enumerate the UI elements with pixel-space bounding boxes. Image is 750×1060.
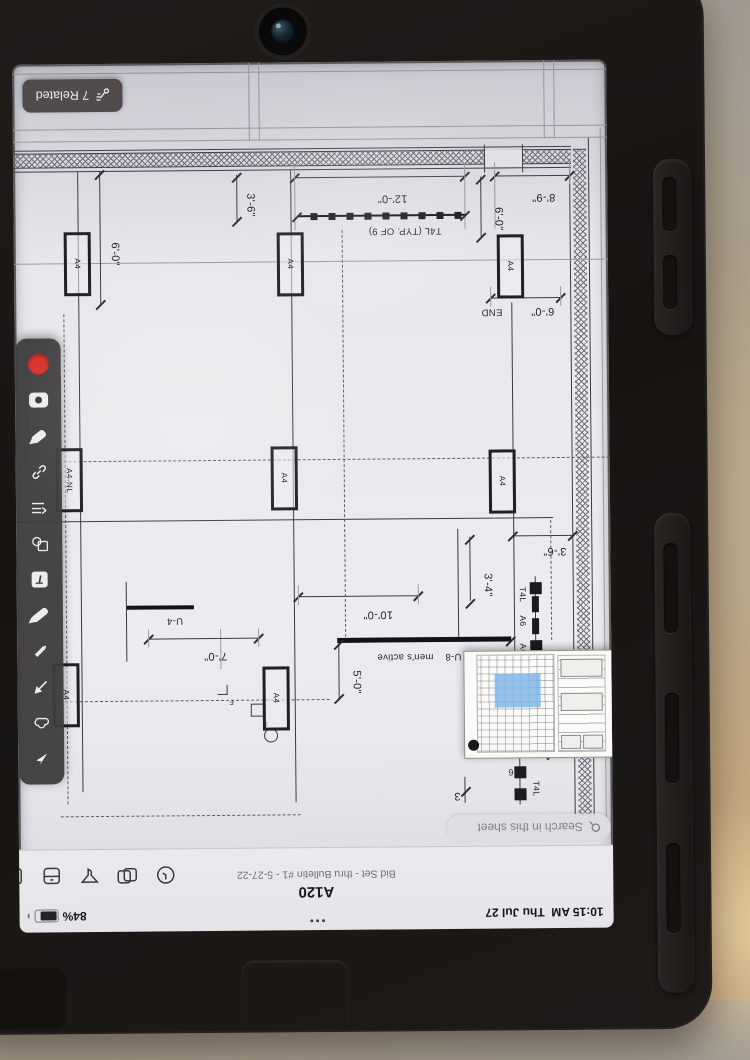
record-issue-button[interactable] xyxy=(24,350,52,378)
sheet-minimap[interactable] xyxy=(463,650,613,759)
text-tool[interactable]: T xyxy=(26,565,54,593)
battery-status: 84% xyxy=(28,909,87,924)
label-t4l-lower: T4L xyxy=(532,781,541,797)
ipad-rugged-case: 12'-0" 8'-9" 3'-6" 6'-0" 6'-0" 6'-0" END… xyxy=(0,0,713,1035)
multitask-dots[interactable]: ••• xyxy=(20,912,614,929)
fixture-a4: A4 xyxy=(262,666,290,730)
case-button-bumper xyxy=(653,159,693,335)
ipad-screen: 12'-0" 8'-9" 3'-6" 6'-0" 6'-0" 6'-0" END… xyxy=(12,60,614,933)
camera-cutout xyxy=(254,2,313,61)
dim-6-0-b: 6'-0" xyxy=(492,207,503,231)
minimap-legend-strip xyxy=(557,655,606,752)
minimap-viewport[interactable] xyxy=(494,673,540,707)
highlighter-tool[interactable] xyxy=(26,601,54,629)
filter-funnel-icon[interactable] xyxy=(77,863,102,888)
label-t4l-typ: T4L (TYP. OF 9) xyxy=(368,226,441,236)
label-f-2: F xyxy=(229,698,234,705)
volume-button xyxy=(662,177,676,231)
marker-tool[interactable] xyxy=(25,422,53,450)
fixture-a4: A4 xyxy=(489,449,517,513)
hyperlink-tool[interactable] xyxy=(25,458,53,486)
camera-lens xyxy=(271,19,295,43)
dim-3-6-b: 3'-6" xyxy=(543,545,567,556)
markup-toolbar: T xyxy=(16,338,65,784)
dim-3-4: 3'-4" xyxy=(482,573,493,597)
label-t4l-chain-2: T4L xyxy=(518,587,527,603)
pen-tool[interactable] xyxy=(27,637,55,665)
dim-3: 3 xyxy=(454,790,461,801)
dim-7-0: 7'-0" xyxy=(204,650,228,661)
callout-list-tool[interactable] xyxy=(25,494,53,522)
fixture-a4: A4 xyxy=(271,446,299,510)
battery-icon xyxy=(35,910,59,923)
app-header: 10:15 AM Thu Jul 27 ••• 84% A120 Bid Set… xyxy=(19,845,614,933)
side-rail-slot xyxy=(663,543,678,633)
side-rail-slot xyxy=(666,843,681,933)
search-icon xyxy=(589,821,601,833)
search-in-sheet[interactable]: Search in this sheet xyxy=(447,814,611,842)
dim-5-0: 5'-0" xyxy=(350,670,361,694)
label-u4: U-4 xyxy=(167,616,183,626)
label-a6-chain-2: A6 xyxy=(518,615,527,626)
case-strap xyxy=(242,960,349,1031)
fixture-a4: A4 xyxy=(497,234,525,298)
dim-8-9: 8'-9" xyxy=(532,191,556,202)
compare-versions-icon[interactable] xyxy=(115,863,140,888)
minimap-pin[interactable] xyxy=(468,740,479,751)
more-tools-icon[interactable] xyxy=(12,864,26,889)
shapes-tool[interactable] xyxy=(26,530,54,558)
arrow-annotation-tool[interactable] xyxy=(27,673,55,701)
fixture-a4: A4 xyxy=(64,232,92,296)
camera-tool[interactable] xyxy=(24,386,52,414)
select-arrow-tool[interactable] xyxy=(28,744,56,772)
fixture-a4: A4 xyxy=(277,232,305,296)
case-corner xyxy=(0,968,67,1029)
side-rail-slot xyxy=(665,693,680,783)
dim-6-0-a: 6'-0" xyxy=(109,242,120,266)
related-items-label: 7 Related xyxy=(36,89,90,103)
floor-plan[interactable]: 12'-0" 8'-9" 3'-6" 6'-0" 6'-0" 6'-0" END… xyxy=(12,60,614,933)
label-end: END xyxy=(481,307,502,317)
dim-10-0: 10'-0" xyxy=(363,608,393,619)
history-clock-icon[interactable] xyxy=(153,862,178,887)
sheet-drawer-icon[interactable] xyxy=(39,863,64,888)
label-u8: U-8 xyxy=(445,651,461,661)
related-items-icon xyxy=(95,88,109,102)
search-placeholder: Search in this sheet xyxy=(477,820,583,835)
related-items-button[interactable]: 7 Related xyxy=(22,79,122,113)
cloud-markup-tool[interactable] xyxy=(27,709,55,737)
label-six: 6 xyxy=(508,767,513,776)
label-mens-active: men's active xyxy=(377,652,433,662)
dim-3-6-a: 3'-6" xyxy=(244,193,255,217)
case-side-rail xyxy=(654,513,694,993)
dim-12-0: 12'-0" xyxy=(377,192,407,203)
dim-6-0-c: 6'-0" xyxy=(531,305,555,316)
volume-button xyxy=(663,255,677,309)
